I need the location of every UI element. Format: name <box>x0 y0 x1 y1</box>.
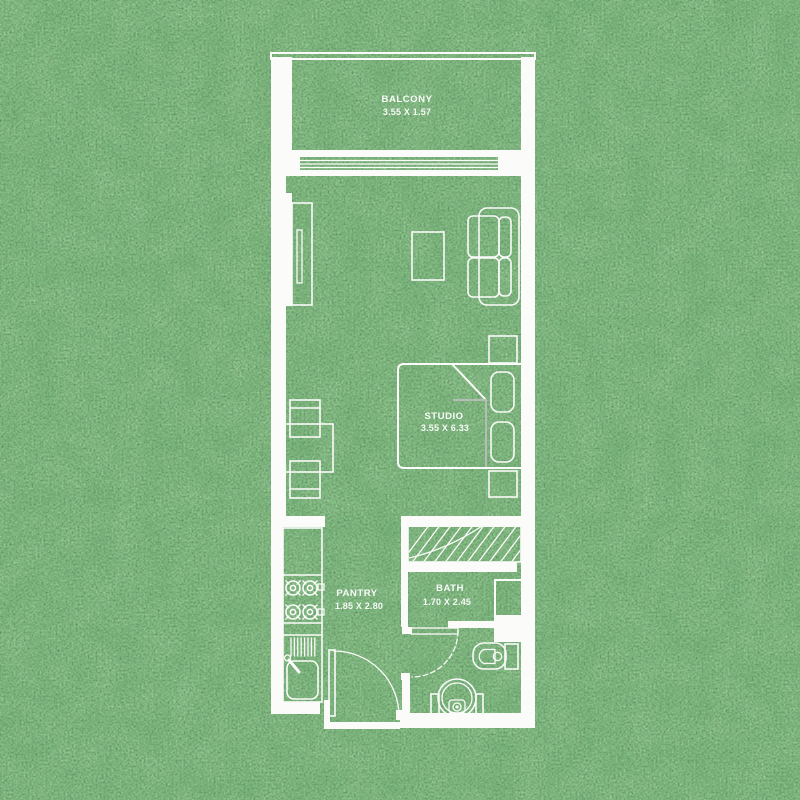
studio-dimensions: 3.55 X 6.33 <box>421 423 469 433</box>
balcony-label: BALCONY <box>382 94 433 105</box>
wall-segment <box>494 617 523 642</box>
balcony-dimensions: 3.55 X 1.57 <box>383 107 431 117</box>
bath-label: BATH <box>436 583 464 594</box>
door-frame <box>401 673 410 680</box>
wall-segment <box>285 193 292 306</box>
pantry-label: PANTRY <box>336 588 377 599</box>
entrance-threshold <box>324 722 400 729</box>
wall-segment <box>408 562 517 572</box>
wall-segment <box>402 680 410 714</box>
floor-plan-canvas: BALCONY 3.55 X 1.57 STUDIO 3.55 X 6.33 P… <box>0 0 800 800</box>
bath-dimensions: 1.70 X 2.45 <box>423 597 471 607</box>
wall-segment <box>400 713 535 728</box>
wall-segment <box>285 170 521 176</box>
wall-segment <box>271 702 320 714</box>
wall-segment <box>448 621 496 628</box>
pantry-dimensions: 1.85 X 2.80 <box>335 601 383 611</box>
wall-segment <box>498 156 521 172</box>
wall-segment <box>271 526 283 702</box>
wall-segment <box>521 57 535 727</box>
wall-segment <box>271 516 325 527</box>
studio-label: STUDIO <box>424 411 463 422</box>
grass-shading <box>0 0 800 800</box>
screenshot-stage: BALCONY 3.55 X 1.57 STUDIO 3.55 X 6.33 P… <box>0 0 800 800</box>
wall-segment <box>401 516 408 627</box>
window-sill <box>292 150 521 157</box>
